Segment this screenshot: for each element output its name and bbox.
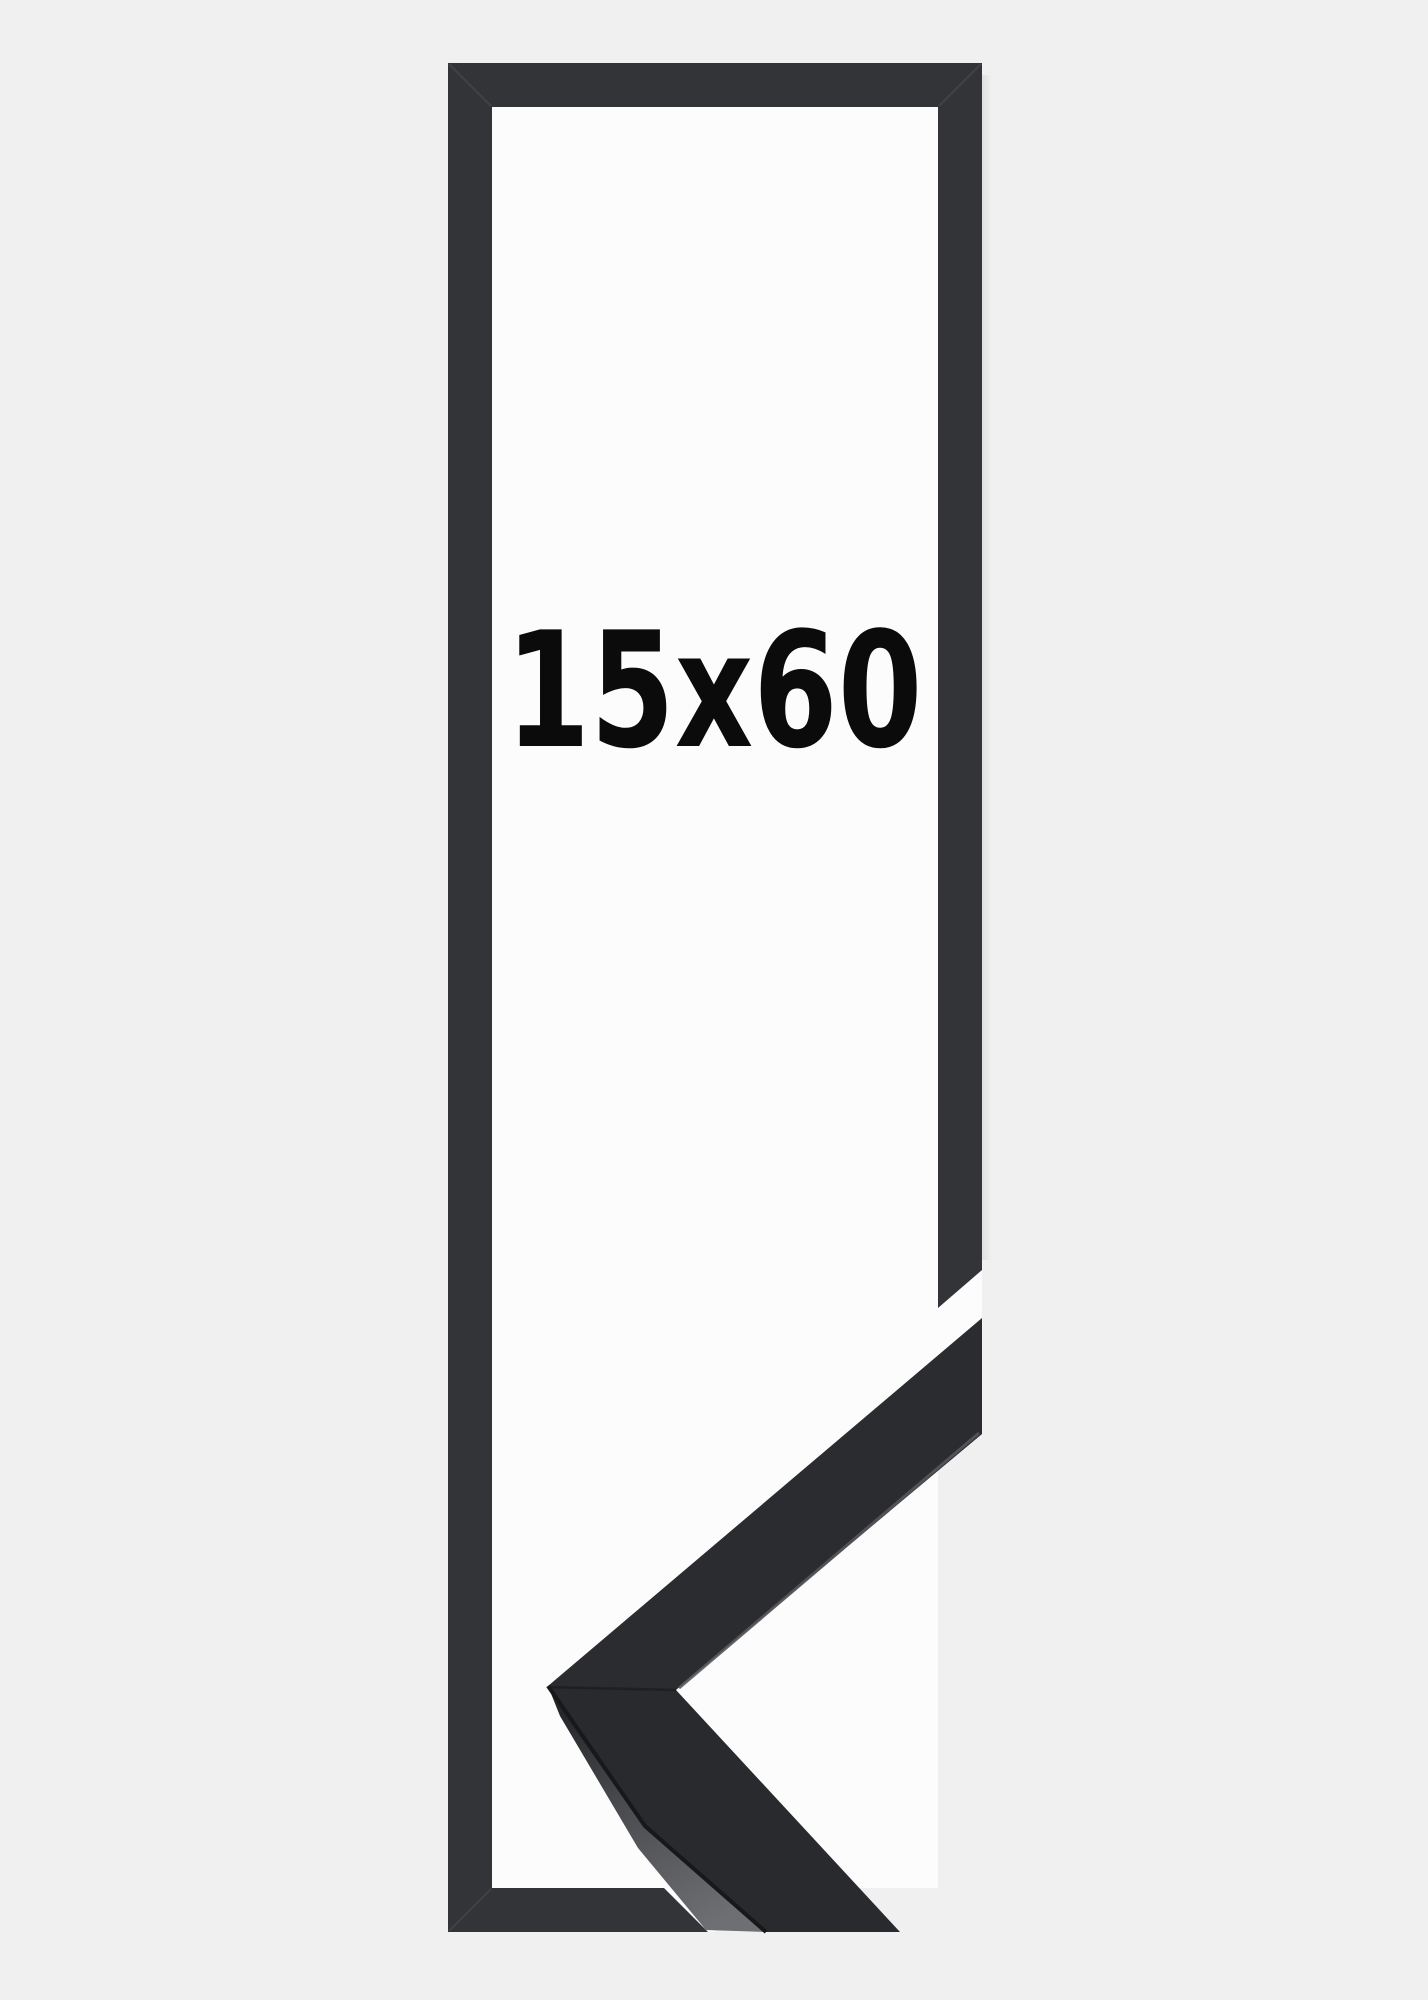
size-label: 15x60	[506, 597, 923, 784]
frame-outline-top	[448, 63, 982, 107]
size-label-group: 15x60	[506, 597, 923, 784]
frame-product-image: 15x60	[0, 0, 1428, 2000]
frame-outline-bottom	[448, 1888, 708, 1932]
right-border-shadow	[982, 75, 992, 1260]
frame-outline-left	[448, 63, 492, 1932]
frame-outline-right	[938, 63, 982, 1308]
frame-illustration: 15x60	[0, 0, 1428, 2000]
